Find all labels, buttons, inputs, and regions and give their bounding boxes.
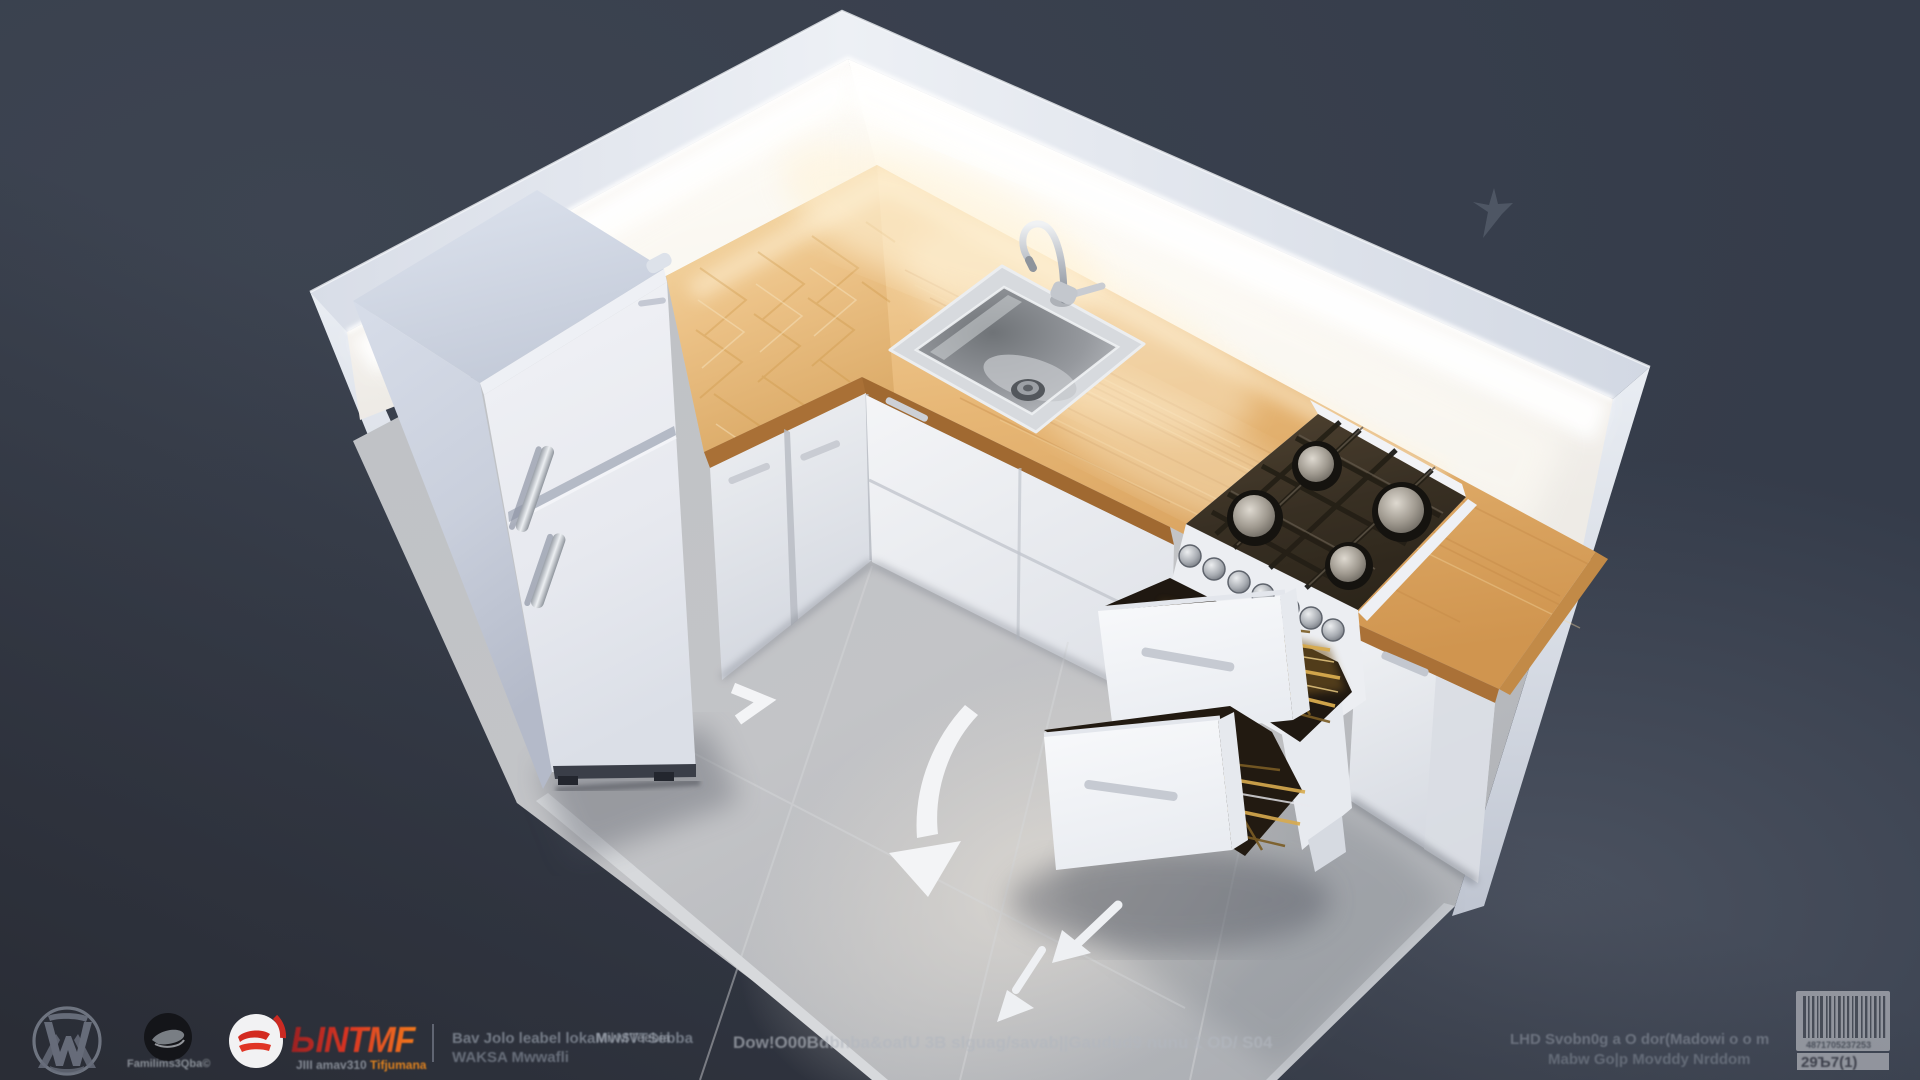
svg-text:Tifjumana: Tifjumana bbox=[370, 1058, 427, 1072]
svg-text:WAKSA Mwwafli: WAKSA Mwwafli bbox=[452, 1049, 569, 1066]
svg-text:Familims3Qba©: Familims3Qba© bbox=[127, 1058, 210, 1070]
svg-text:ЫNTMF: ЫNTMF bbox=[291, 1020, 417, 1060]
svg-text:JIII amav310: JIII amav310 bbox=[296, 1058, 367, 1072]
svg-text:Dow!O00Bdbnba&oafU 3B slguag/s: Dow!O00Bdbnba&oafU 3B slguag/savab||Gaud… bbox=[733, 1033, 1273, 1052]
svg-text:MilvSTeebia: MilvSTeebia bbox=[596, 1030, 671, 1045]
svg-text:29Ъ7(1): 29Ъ7(1) bbox=[1801, 1054, 1857, 1071]
svg-text:Mabw Go|p Movddy Nrddom: Mabw Go|p Movddy Nrddom bbox=[1548, 1051, 1751, 1068]
svg-text:LHD Svobn0g a O dor(Madowi o o: LHD Svobn0g a O dor(Madowi o o m bbox=[1510, 1031, 1769, 1048]
svg-text:4871705237253: 4871705237253 bbox=[1806, 1040, 1871, 1050]
